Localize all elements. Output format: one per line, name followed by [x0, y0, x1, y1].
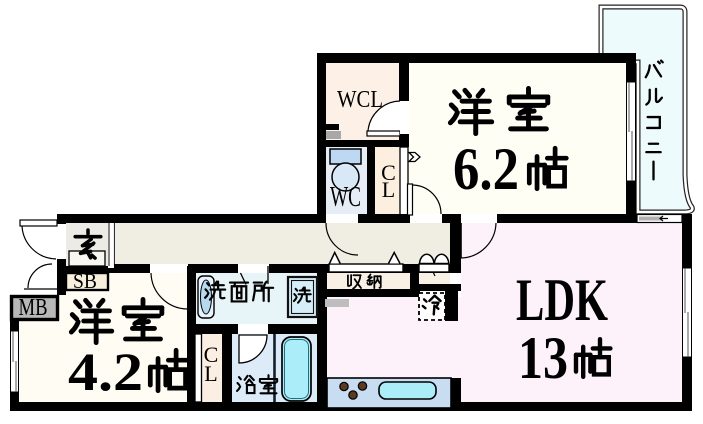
svg-text:WC: WC [330, 181, 361, 213]
svg-text:WCL: WCL [337, 87, 383, 113]
svg-text:SB: SB [73, 269, 97, 293]
svg-text:LDK: LDK [516, 267, 608, 333]
svg-text:4.2: 4.2 [68, 342, 143, 402]
svg-text:MB: MB [19, 295, 48, 321]
svg-text:L: L [382, 177, 395, 202]
svg-text:L: L [204, 361, 217, 386]
svg-text:13: 13 [518, 325, 568, 391]
svg-text:6.2: 6.2 [453, 136, 519, 202]
